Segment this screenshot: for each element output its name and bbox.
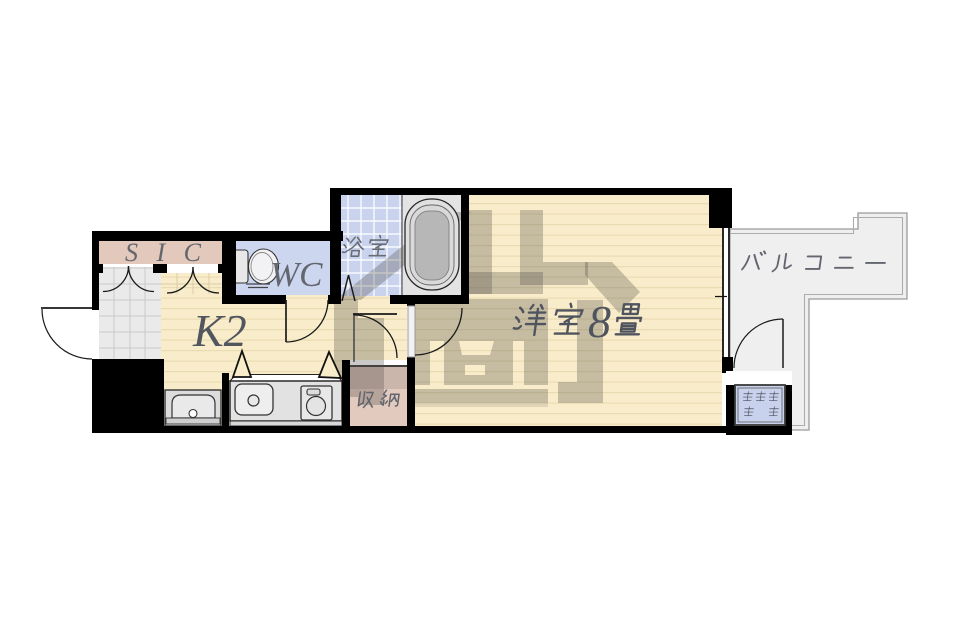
svg-text:WC: WC: [270, 255, 323, 294]
svg-text:S I C: S I C: [125, 238, 207, 267]
svg-text:K2: K2: [192, 305, 247, 356]
svg-text:8: 8: [588, 296, 611, 347]
